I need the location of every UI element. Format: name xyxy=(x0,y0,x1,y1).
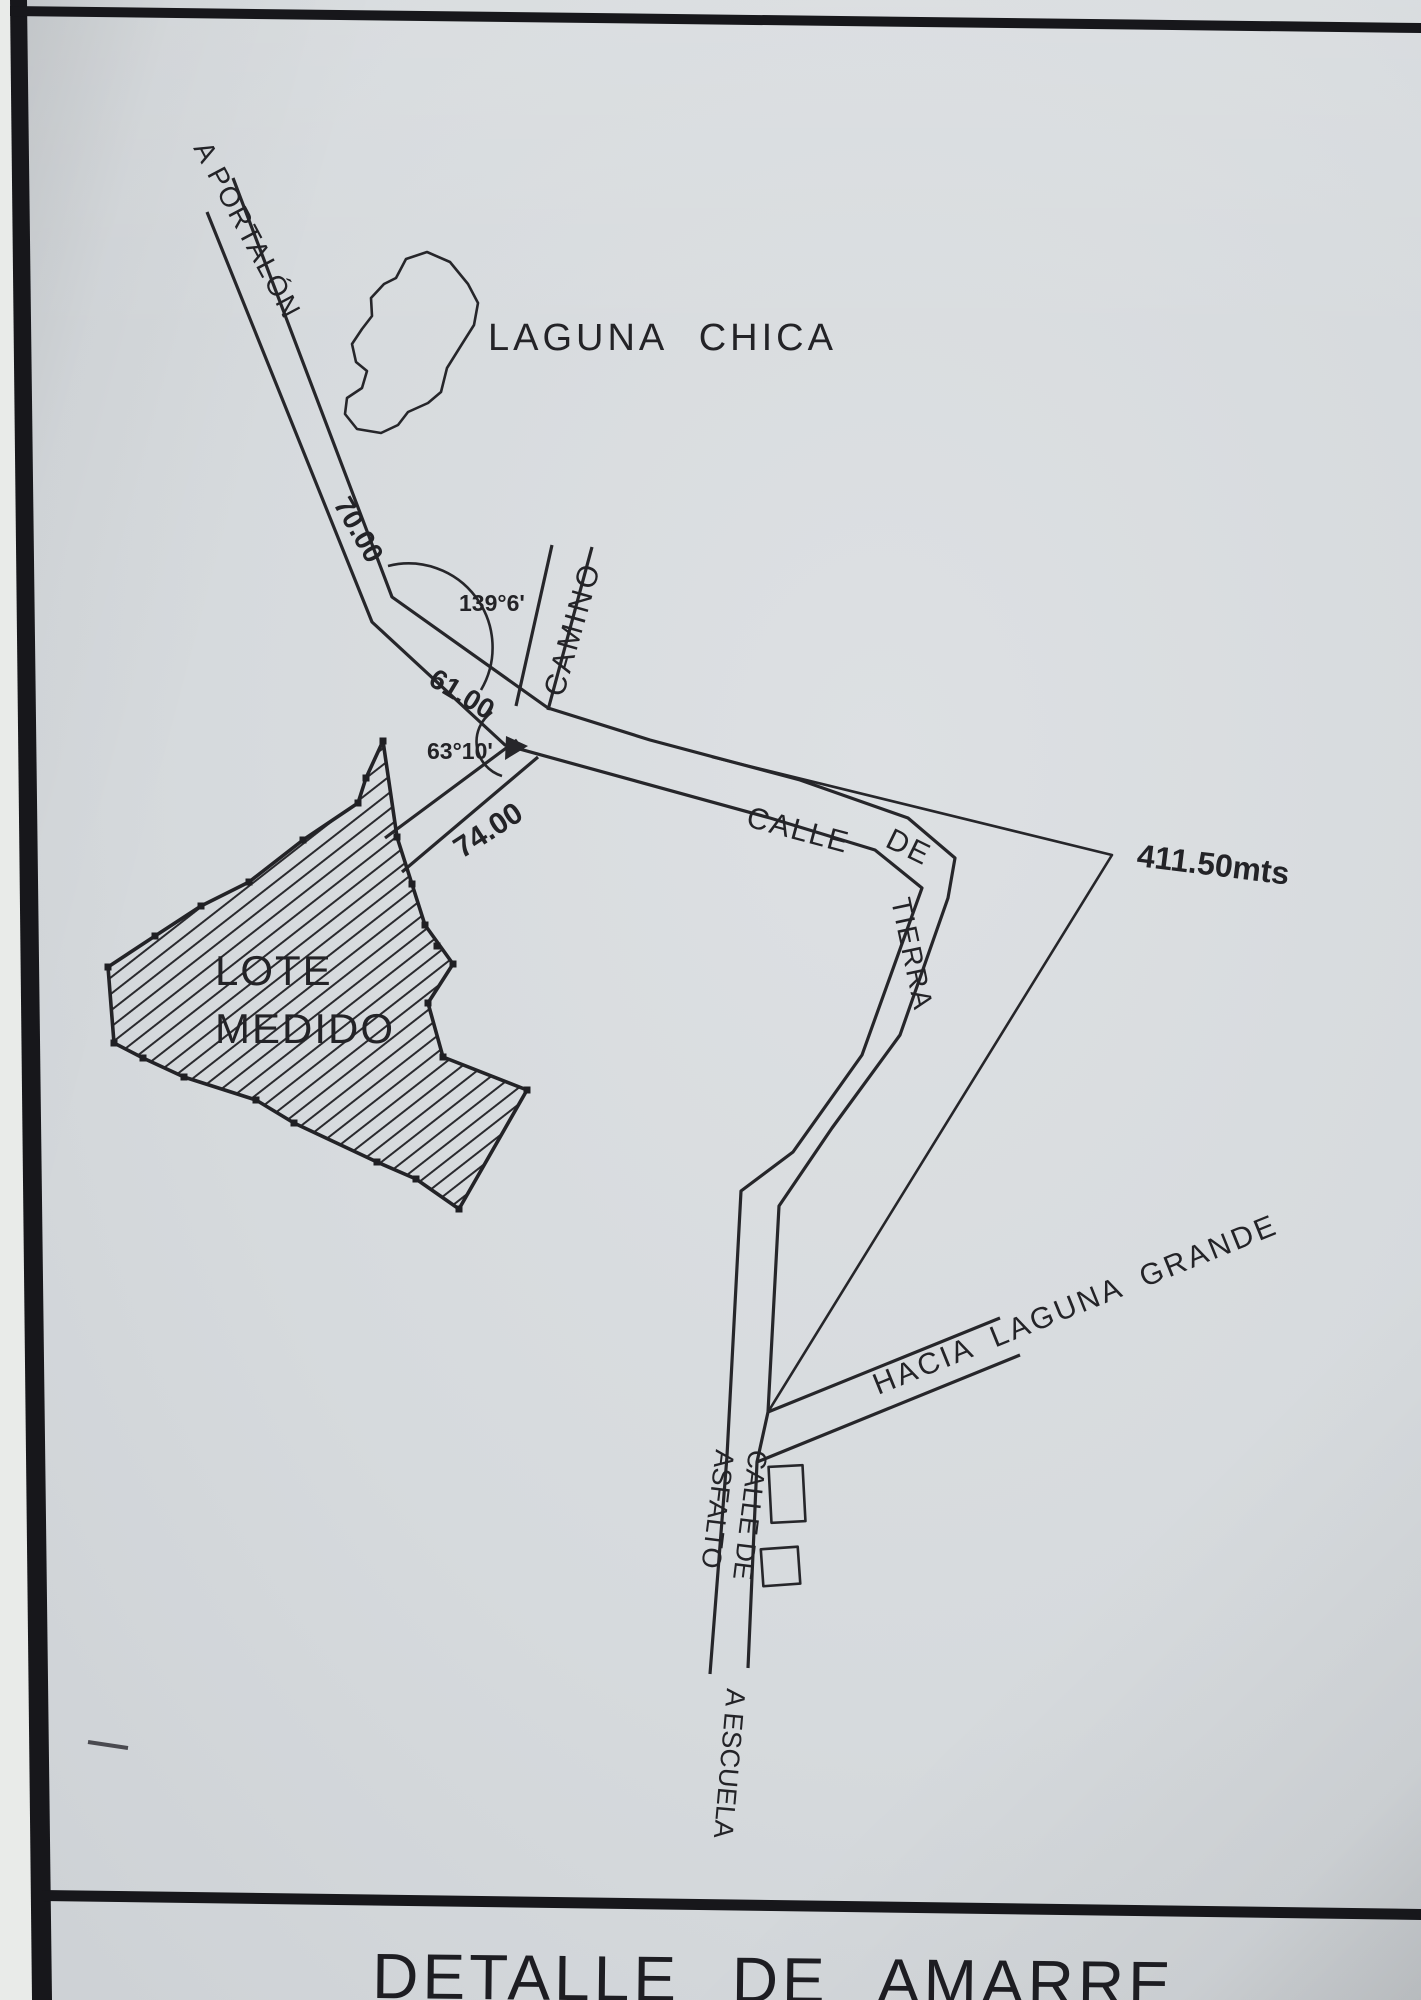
stray-mark xyxy=(88,1742,128,1748)
building-rect-1 xyxy=(769,1465,806,1523)
road-label-a-portalon: A PORTALÓN xyxy=(188,136,308,324)
page-title: DETALLE DE AMARRE xyxy=(372,1940,1175,2000)
feature-label-laguna-chica: LAGUNA CHICA xyxy=(488,317,837,359)
dim-angle-63: 63°10' xyxy=(427,738,493,764)
road-label-a-escuela: A ESCUELA xyxy=(708,1687,751,1839)
frame-border-bottom xyxy=(42,1890,1421,1920)
laguna-chica-outline xyxy=(345,252,478,433)
survey-map-drawing: A PORTALÓN LAGUNA CHICA 70.00 139°6' CAM… xyxy=(0,0,1421,2000)
survey-map-photo: A PORTALÓN LAGUNA CHICA 70.00 139°6' CAM… xyxy=(0,0,1421,2000)
road-label-de: DE xyxy=(881,823,937,873)
dim-411-50: 411.50mts xyxy=(1135,837,1291,891)
dim-74: 74.00 xyxy=(448,796,529,865)
road-label-camino: CAMINO xyxy=(538,558,608,700)
building-rect-2 xyxy=(761,1547,800,1586)
frame-border-top xyxy=(10,6,1421,33)
dim-angle-139: 139°6' xyxy=(459,590,525,616)
road-label-tierra: TIERRA xyxy=(885,895,939,1014)
feature-label-lote: LOTE xyxy=(215,947,333,994)
dim-70: 70.00 xyxy=(328,492,390,568)
road-label-calle: CALLE xyxy=(743,801,853,860)
road-label-hacia-laguna-grande: HACIA LAGUNA GRANDE xyxy=(868,1208,1283,1401)
road-tierra-upper-line xyxy=(233,178,955,1412)
feature-label-medido: MEDIDO xyxy=(215,1005,395,1052)
